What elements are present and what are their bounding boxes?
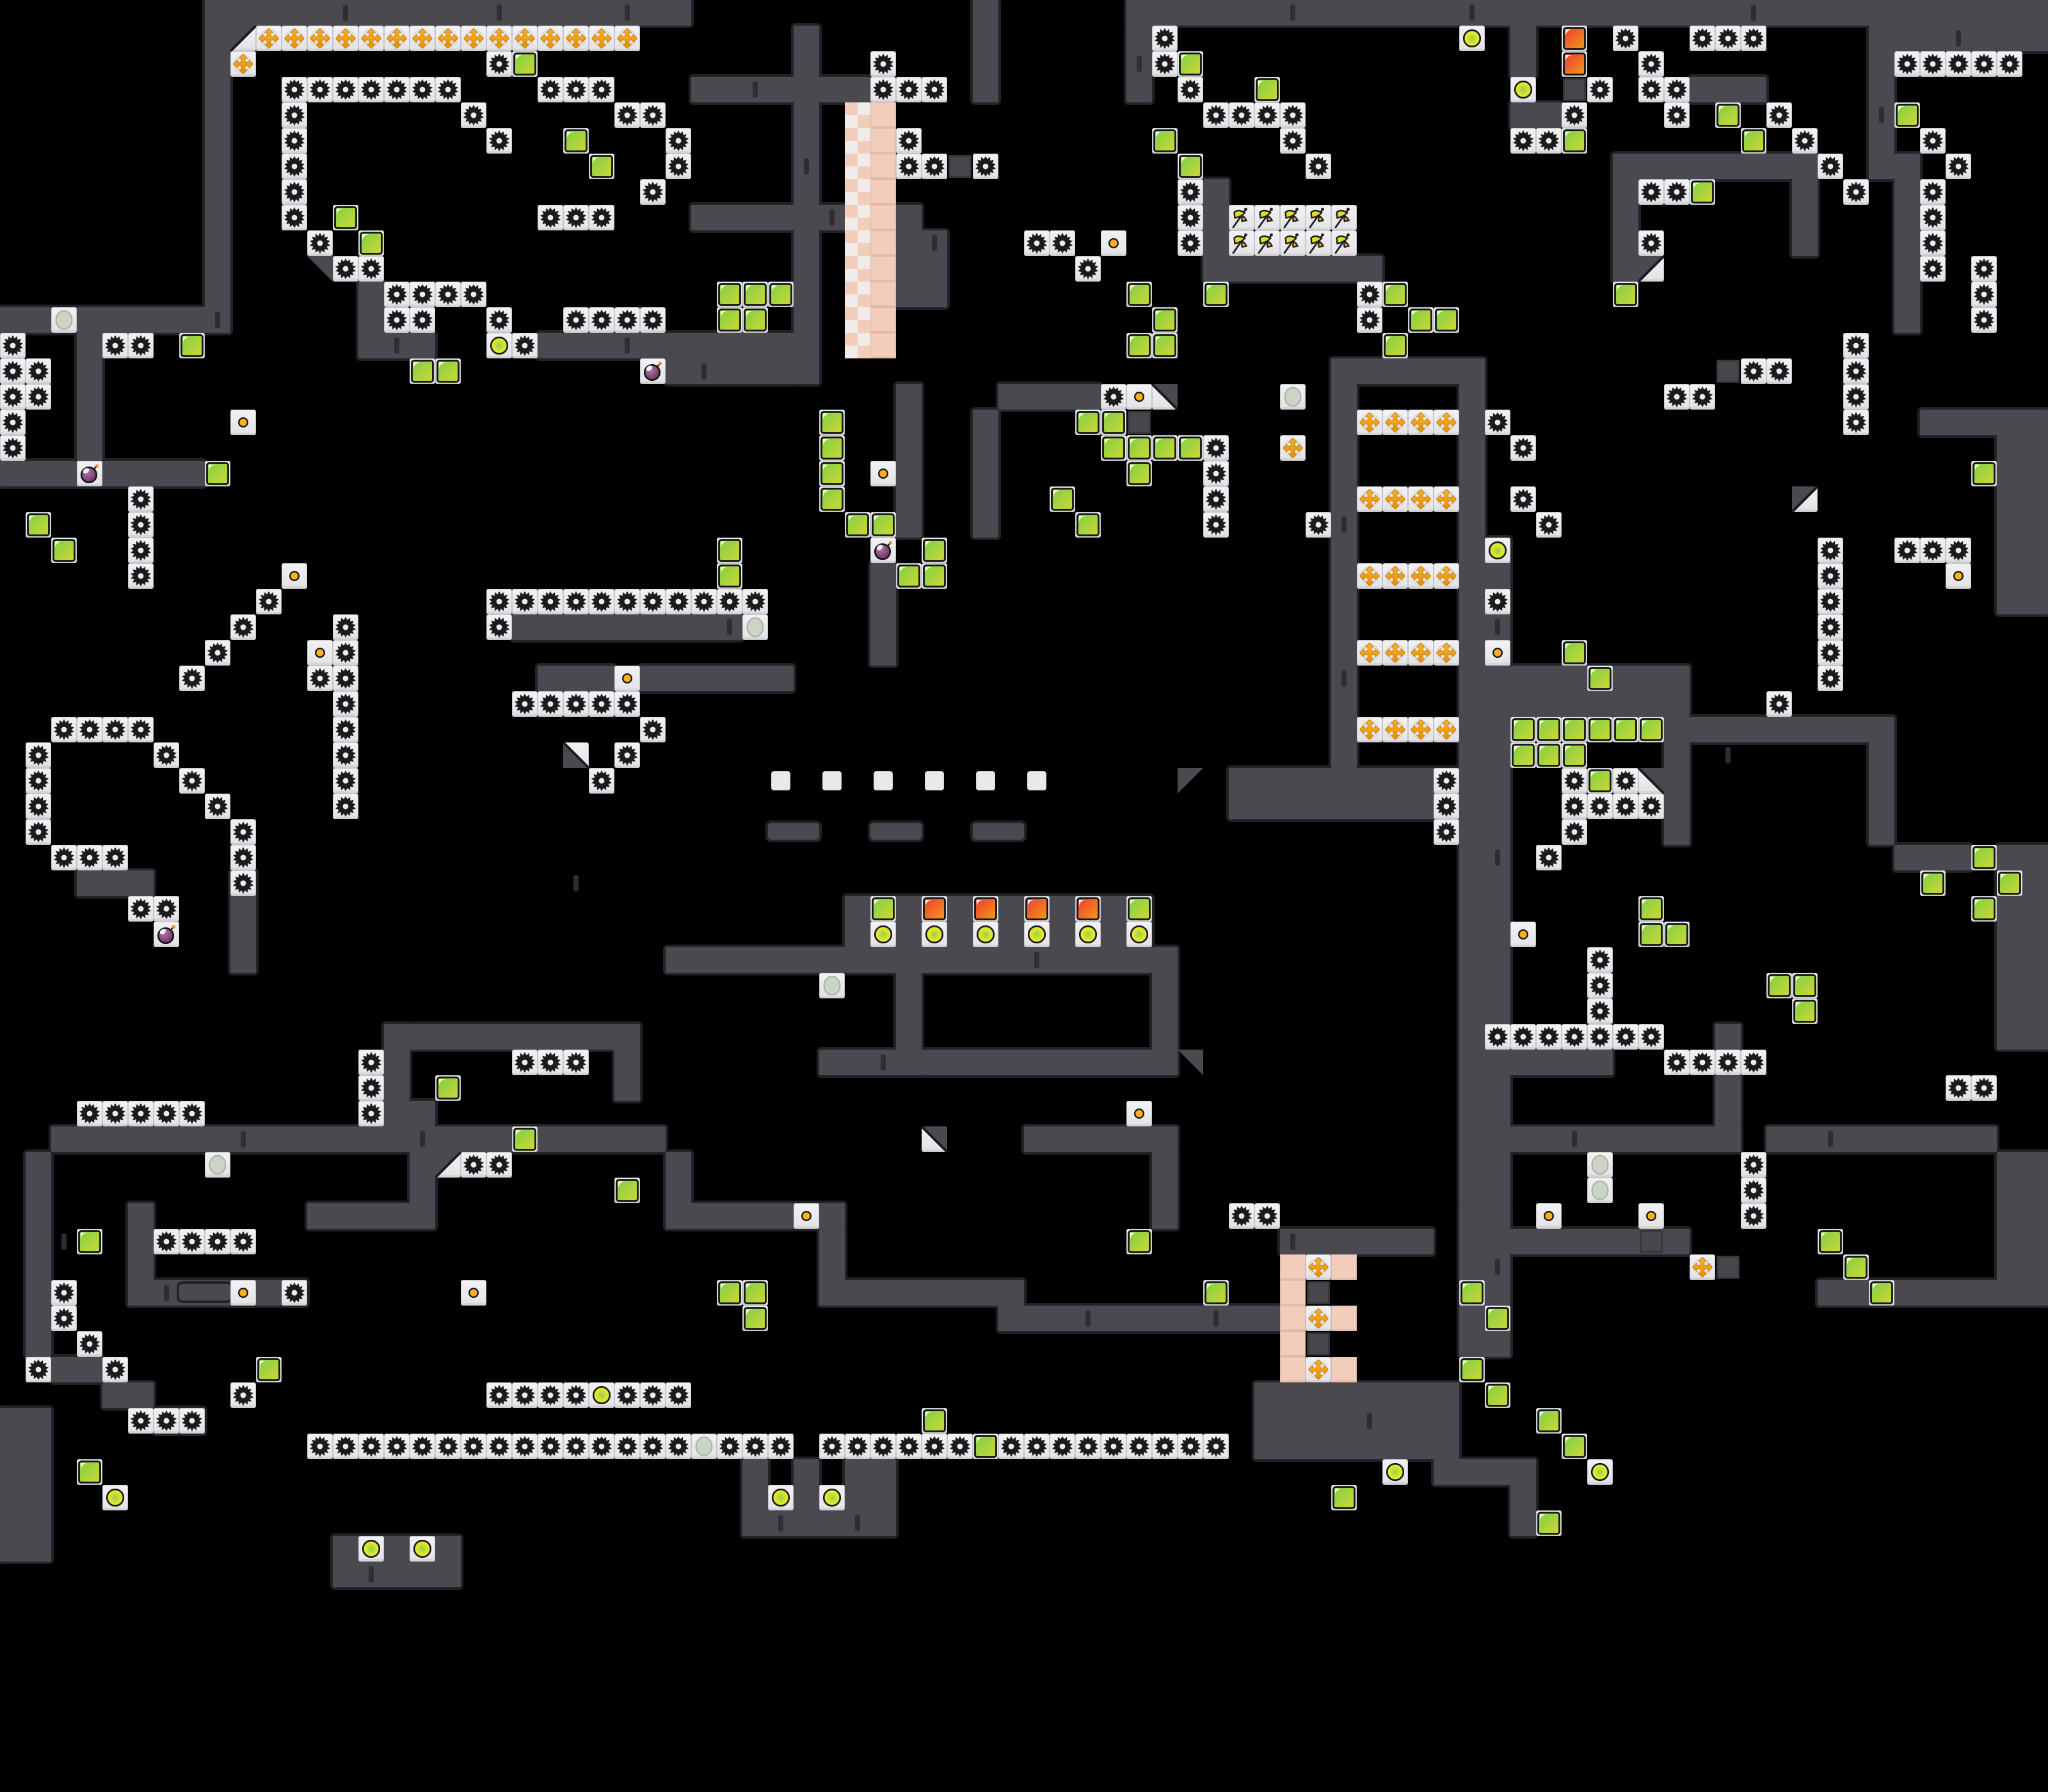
wall-corner-slope [1178,1050,1203,1075]
button-tile [870,922,896,947]
gear-icon [563,1050,589,1075]
dark-tile [1306,1331,1331,1357]
gear-tile [128,538,154,563]
gear-icon [1638,1024,1664,1050]
wall [230,0,691,26]
wall [51,1126,410,1152]
button-tile [102,1485,128,1510]
pink-block [870,205,896,230]
gear-icon [384,1434,410,1459]
gear-tile [102,333,128,358]
wall-rivet-tick [625,337,630,354]
button-tile [1587,1459,1613,1485]
gear-tile [870,1434,896,1459]
cross-icon [1408,410,1434,435]
gem_green-tile [1126,333,1152,358]
gear-tile [922,77,947,102]
gem_green-tile [1075,410,1101,435]
gear-icon [179,1408,205,1434]
gear-tile [640,1382,666,1408]
button-tile [1126,922,1152,947]
orb-icon [205,1152,230,1178]
wall [922,1050,1178,1075]
wall [205,0,230,333]
gear-icon [1843,410,1869,435]
gem-green-icon [742,307,768,333]
gear-tile [179,1408,205,1434]
gear-icon [51,1306,77,1331]
coin-tile [230,410,256,435]
button-icon [1485,538,1510,563]
gem-green-icon [1792,973,1818,998]
flag-icon [1331,205,1357,230]
gear-tile [538,1382,563,1408]
gear-tile [538,1050,563,1075]
cross-icon [486,26,512,51]
gear-tile [666,128,691,154]
gear-tile [333,742,358,768]
cross-tile [589,26,614,51]
gear-tile [1280,102,1306,128]
gem-green-icon [1638,922,1664,947]
gear-tile [435,282,461,307]
gear-icon [1075,1434,1101,1459]
gear-icon [563,77,589,102]
button-tile [768,1485,794,1510]
wall [538,666,614,691]
gear-icon [1766,102,1792,128]
gear-tile [563,589,589,614]
gem-green-icon [1382,333,1408,358]
gear-icon [102,1101,128,1126]
gem-green-icon [1613,282,1638,307]
pink-tile [1280,1280,1306,1306]
gear-icon [1971,51,1997,77]
gear-icon [845,1434,870,1459]
gear-icon [77,717,102,742]
wall [896,973,922,1075]
button-icon [589,1382,614,1408]
orb-icon [1587,1152,1613,1178]
gem_green-tile [563,128,589,154]
gem-green-icon [717,282,742,307]
gear-icon [896,154,922,179]
cross-tile [1382,410,1408,435]
gear-icon [1587,1024,1613,1050]
gear-icon [1792,128,1818,154]
pinkck-tile [845,333,870,358]
dark-block [1563,78,1586,101]
gem_green-tile [1434,307,1459,333]
gear-tile [26,794,51,819]
cross-tile [1357,563,1382,589]
wall [1510,26,1536,77]
gear-icon [717,1434,742,1459]
pink-tile [870,128,896,154]
gear-icon [282,179,307,205]
gear-icon [333,742,358,768]
wall-rivet-tick [1572,1131,1577,1148]
gear-tile [26,742,51,768]
button-icon [486,333,512,358]
gem-green-icon [1536,742,1562,768]
gear-tile [666,1434,691,1459]
coin-icon [1510,922,1536,947]
slope-tile [1152,384,1178,410]
pinkck-block [845,256,870,282]
gear-icon [1741,1203,1766,1229]
gear-icon [205,794,230,819]
gear-icon [512,589,538,614]
gear-tile [1843,384,1869,410]
pink-block [870,102,896,128]
wall [1331,384,1357,768]
gem-green-icon [1818,1229,1843,1254]
cross-icon [563,26,589,51]
gear-icon [1843,179,1869,205]
button-tile [1510,77,1536,102]
gear-tile [461,102,486,128]
gear-tile [1203,461,1229,486]
wall [77,307,102,461]
gear-icon [486,1152,512,1178]
gear-icon [1562,102,1587,128]
gear-tile [614,589,640,614]
gem_green-tile [1459,1357,1485,1382]
gear-icon [282,77,307,102]
gem-red-icon [1562,26,1587,51]
wall-rivet-tick [369,1566,374,1583]
gear-tile [230,614,256,640]
gear-tile [563,1050,589,1075]
gem_red-tile [1075,896,1101,922]
pinkck-block [845,205,870,230]
gear-icon [282,128,307,154]
gear-tile [51,1280,77,1306]
wall [998,384,1101,410]
pink-tile [870,307,896,333]
gem-green-icon [333,205,358,230]
gear-tile [1562,1024,1587,1050]
gear-icon [333,691,358,717]
gear-tile [486,51,512,77]
gear-tile [1203,486,1229,512]
gear-tile [1075,256,1101,282]
gear-tile [333,717,358,742]
gear-icon [1280,102,1306,128]
gem_green-tile [922,538,947,563]
gear-icon [896,128,922,154]
cross-tile [1434,563,1459,589]
gear-tile [640,717,666,742]
gear-tile [1818,538,1843,563]
pink-block [870,179,896,205]
gem_green-tile [1971,845,1997,870]
button-tile [1075,922,1101,947]
gear-tile [102,1357,128,1382]
wall-rivet-tick [1290,4,1295,21]
gem_green-tile [1613,717,1638,742]
gear-icon [1741,1152,1766,1178]
wall [538,333,794,358]
gem-green-icon [922,563,947,589]
gear-tile [282,1280,307,1306]
gear-icon [1510,128,1536,154]
gem-green-icon [1178,435,1203,461]
gear-tile [256,589,282,614]
gear-icon [538,205,563,230]
gem_green-tile [256,1357,282,1382]
gear-tile [358,1075,384,1101]
gem_green-tile [1638,717,1664,742]
gem_green-tile [768,282,794,307]
pink-tile [870,256,896,282]
gem_green-tile [742,282,768,307]
gem-green-icon [1152,435,1178,461]
wall [435,1126,666,1152]
cross-icon [410,26,435,51]
wall-rivet-tick [1828,1131,1833,1148]
gem_red-tile [973,896,998,922]
gear-tile [1613,1024,1638,1050]
wall-rivet-tick [1495,849,1500,866]
coin-icon [461,1280,486,1306]
gear-icon [51,717,77,742]
gear-icon [333,77,358,102]
gear-icon [205,1229,230,1254]
gear-tile [973,154,998,179]
dark-block [1307,1281,1330,1304]
gear-tile [1152,26,1178,51]
coin-tile [794,1203,819,1229]
gem_green-tile [845,512,870,538]
gear-icon [1075,256,1101,282]
gear-icon [358,1101,384,1126]
gem_green-tile [1178,51,1203,77]
cross-tile [1382,717,1408,742]
cross-tile [435,26,461,51]
gear-tile [358,77,384,102]
gear-tile [486,1382,512,1408]
cross-icon [1306,1306,1331,1331]
gear-tile [410,282,435,307]
gear-icon [717,589,742,614]
gear-tile [947,1434,973,1459]
flag-tile [1306,230,1331,256]
flag-icon [1306,230,1331,256]
gear-icon [922,154,947,179]
gear-tile [1818,589,1843,614]
gear-tile [998,1434,1024,1459]
gear-tile [589,768,614,794]
gear-tile [179,768,205,794]
flag-tile [1280,230,1306,256]
gear-icon [0,410,26,435]
cross-tile [256,26,282,51]
gem-green-icon [77,1459,102,1485]
gear-tile [896,1434,922,1459]
gear-icon [1254,102,1280,128]
orb-icon [691,1434,717,1459]
slope-icon [563,742,589,768]
gear-icon [563,1382,589,1408]
gear-icon [307,666,333,691]
wall-rivet-tick [753,81,758,98]
gem_green-tile [819,435,845,461]
wall-rivet-tick [881,1054,886,1071]
pink-tile [1280,1306,1306,1331]
gear-icon [154,1229,179,1254]
button-icon [768,1485,794,1510]
gear-tile [589,77,614,102]
gear-icon [1818,614,1843,640]
gear-tile [1946,154,1971,179]
gear-tile [1664,179,1690,205]
gem_green-tile [1510,742,1536,768]
gear-icon [1664,179,1690,205]
wall-rivet-tick [215,312,220,328]
gear-tile [486,307,512,333]
gear-tile [1485,589,1510,614]
coin-icon [307,640,333,666]
gear-tile [589,205,614,230]
gear-icon [538,589,563,614]
gear-tile [1894,538,1920,563]
gear-tile [1562,768,1587,794]
gem-green-icon [512,51,538,77]
gear-tile [282,205,307,230]
cross-icon [1357,563,1382,589]
dark-tile [1638,1229,1664,1254]
gear-icon [333,256,358,282]
gem_red-tile [1562,26,1587,51]
gem-green-icon [717,563,742,589]
gem_green-tile [1126,435,1152,461]
gear-tile [205,794,230,819]
white-tile [973,768,998,794]
gem_green-tile [1101,435,1126,461]
pinkck-block [845,282,870,307]
gem_green-tile [1971,461,1997,486]
gear-icon [26,384,51,410]
gem_green-tile [1766,973,1792,998]
dark-platform [973,823,1024,840]
wall-rivet-tick [778,1515,783,1532]
gear-icon [563,307,589,333]
pink-block [1280,1357,1306,1382]
gear-tile [410,77,435,102]
gear-tile [1920,230,1946,256]
gem-green-icon [1971,896,1997,922]
gem-green-icon [1203,1280,1229,1306]
gear-icon [1818,563,1843,589]
gem-green-icon [1792,998,1818,1024]
pink-tile [870,282,896,307]
gear-tile [1613,768,1638,794]
gem-green-icon [973,1434,998,1459]
gear-tile [1843,358,1869,384]
gem-green-icon [1459,1280,1485,1306]
gear-tile [384,307,410,333]
gear-tile [51,717,77,742]
wall-rivet-tick [625,4,630,21]
wall-corner-slope [256,1126,282,1152]
gear-tile [1920,128,1946,154]
orb-tile [51,307,77,333]
cross-tile [1357,717,1382,742]
wall [640,666,794,691]
button-icon [973,922,998,947]
gem-green-icon [1101,435,1126,461]
gear-icon [307,1434,333,1459]
gear-tile [102,717,128,742]
orb-icon [742,614,768,640]
orb-tile [691,1434,717,1459]
gear-icon [922,77,947,102]
coin-tile [230,1280,256,1306]
gear-icon [1536,845,1562,870]
gear-icon [179,1101,205,1126]
gear-icon [461,1152,486,1178]
gem_green-tile [410,358,435,384]
gear-tile [154,1229,179,1254]
gear-tile [1434,768,1459,794]
orb-tile [1587,1178,1613,1203]
gear-tile [512,1050,538,1075]
coin-tile [1126,384,1152,410]
cross-icon [230,51,256,77]
slope-icon [1152,384,1178,410]
gear-icon [0,384,26,410]
gear-icon [1690,1050,1715,1075]
gear-tile [51,1306,77,1331]
gear-tile [1587,947,1613,973]
gear-tile [1280,128,1306,154]
cross-icon [1357,486,1382,512]
button-tile [819,1485,845,1510]
button-tile [410,1536,435,1562]
gear-tile [1741,1178,1766,1203]
gear-icon [614,1382,640,1408]
gear-tile [1818,640,1843,666]
gear-icon [1741,26,1766,51]
flag-icon [1254,205,1280,230]
gear-tile [1562,794,1587,819]
gear-tile [1203,102,1229,128]
gem-green-icon [1152,333,1178,358]
pinkck-tile [845,179,870,205]
wall [1152,1152,1178,1229]
wall-rivet-tick [1137,56,1142,72]
pink-block [870,333,896,358]
gear-tile [640,1434,666,1459]
flag-icon [1254,230,1280,256]
cross-tile [1434,486,1459,512]
gear-icon [1664,77,1690,102]
gear-icon [1485,410,1510,435]
gear-icon [1050,1434,1075,1459]
gear-icon [563,205,589,230]
gear-icon [0,333,26,358]
gear-tile [1741,358,1766,384]
gem-green-icon [1741,128,1766,154]
button-icon [1075,922,1101,947]
gear-icon [1920,179,1946,205]
gear-icon [26,794,51,819]
gem_green-tile [1408,307,1434,333]
gear-tile [666,154,691,179]
pinkck-tile [845,128,870,154]
